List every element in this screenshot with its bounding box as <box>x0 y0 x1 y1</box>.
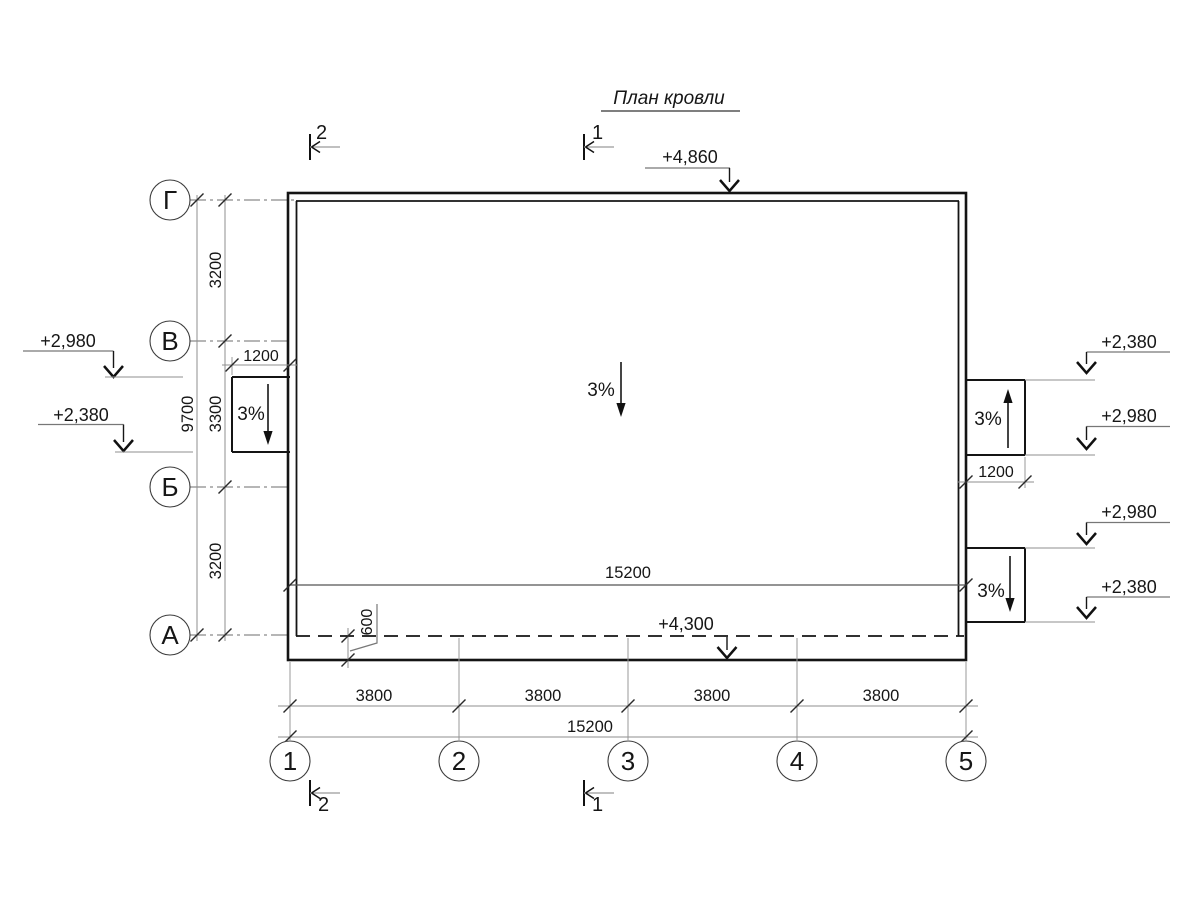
section-number: 1 <box>592 122 603 144</box>
elevation-value: +2,380 <box>1101 332 1157 352</box>
dim-text-canopy-right: 1200 <box>978 464 1014 481</box>
section-number: 2 <box>316 122 327 144</box>
slope-label-center: 3% <box>587 380 615 401</box>
building-outline <box>288 193 966 660</box>
slope-center: 3% <box>587 362 625 417</box>
axis-label-1: 1 <box>283 746 297 776</box>
section-number: 1 <box>592 794 603 816</box>
dim-text-bay-1: 3800 <box>356 687 393 705</box>
section-mark-bottom-left: 2 <box>310 780 340 816</box>
elevation-mark-right-1: +2,380 <box>1077 332 1170 373</box>
slope-label-right-upper: 3% <box>974 409 1002 430</box>
dim-text-left-segment-2: 3300 <box>207 396 225 433</box>
elevation-value: +2,380 <box>53 405 109 425</box>
axis-label-v: В <box>161 326 178 356</box>
dim-text-bay-2: 3800 <box>525 687 562 705</box>
drawing-title: План кровли <box>613 88 725 109</box>
elevation-value: +4,300 <box>658 614 714 634</box>
axis-label-4: 4 <box>790 746 804 776</box>
section-number: 2 <box>318 794 329 816</box>
axis-label-g: Г <box>163 185 177 215</box>
dim-text-left-segment-1: 3200 <box>207 252 225 289</box>
elevation-value: +4,860 <box>662 147 718 167</box>
canopy-left: 3% 1200 <box>222 348 298 452</box>
elevation-mark-right-3: +2,980 <box>1077 502 1170 544</box>
section-mark-top-center: 1 <box>584 122 614 160</box>
axis-label-a: А <box>161 620 179 650</box>
slope-label-right-lower: 3% <box>977 581 1005 602</box>
dim-text-bay-4: 3800 <box>863 687 900 705</box>
title-block: План кровли <box>601 88 740 111</box>
section-mark-top-left: 2 <box>310 122 340 160</box>
slope-arrow-down-icon <box>616 403 625 417</box>
elevation-value: +2,980 <box>40 331 96 351</box>
elevation-mark-ridge: +4,860 <box>645 147 739 191</box>
dim-text-bottom-total: 15200 <box>567 718 613 736</box>
dim-text-overhang: 600 <box>359 609 376 636</box>
dim-text-left-segment-3: 3200 <box>207 543 225 580</box>
axis-label-b: Б <box>161 472 178 502</box>
dim-text-canopy-left: 1200 <box>243 348 279 365</box>
slope-arrow-up-icon <box>1003 389 1012 403</box>
elevation-mark-right-2: +2,980 <box>1077 406 1170 449</box>
elevation-mark-right-4: +2,380 <box>1077 577 1170 618</box>
dim-text-left-total: 9700 <box>179 396 197 433</box>
section-mark-bottom-center: 1 <box>584 780 614 816</box>
elevation-value: +2,980 <box>1101 502 1157 522</box>
dim-text-bay-3: 3800 <box>694 687 731 705</box>
axis-label-5: 5 <box>959 746 973 776</box>
slope-arrow-down-icon <box>263 431 272 445</box>
roof-plan-canvas: План кровли Г В Б А 15200 3% <box>0 0 1200 900</box>
elevation-value: +2,380 <box>1101 577 1157 597</box>
elevation-mark-left-bottom: +2,380 <box>38 405 193 452</box>
dimensions-left: 3200 3300 3200 9700 <box>179 194 232 642</box>
canopy-right-lower: 3% <box>966 548 1095 622</box>
slope-label-left-canopy: 3% <box>237 404 265 425</box>
axis-label-2: 2 <box>452 746 466 776</box>
roof-outer-edge <box>288 193 966 660</box>
dim-text-roof-width: 15200 <box>605 564 651 582</box>
elevation-value: +2,980 <box>1101 406 1157 426</box>
axis-label-3: 3 <box>621 746 635 776</box>
roof-plan-drawing: План кровли Г В Б А 15200 3% <box>0 0 1200 900</box>
canopy-right-upper: 3% 1200 <box>958 380 1095 489</box>
roof-inner-width-dimension: 15200 <box>284 564 973 592</box>
slope-arrow-down-icon <box>1005 598 1014 612</box>
